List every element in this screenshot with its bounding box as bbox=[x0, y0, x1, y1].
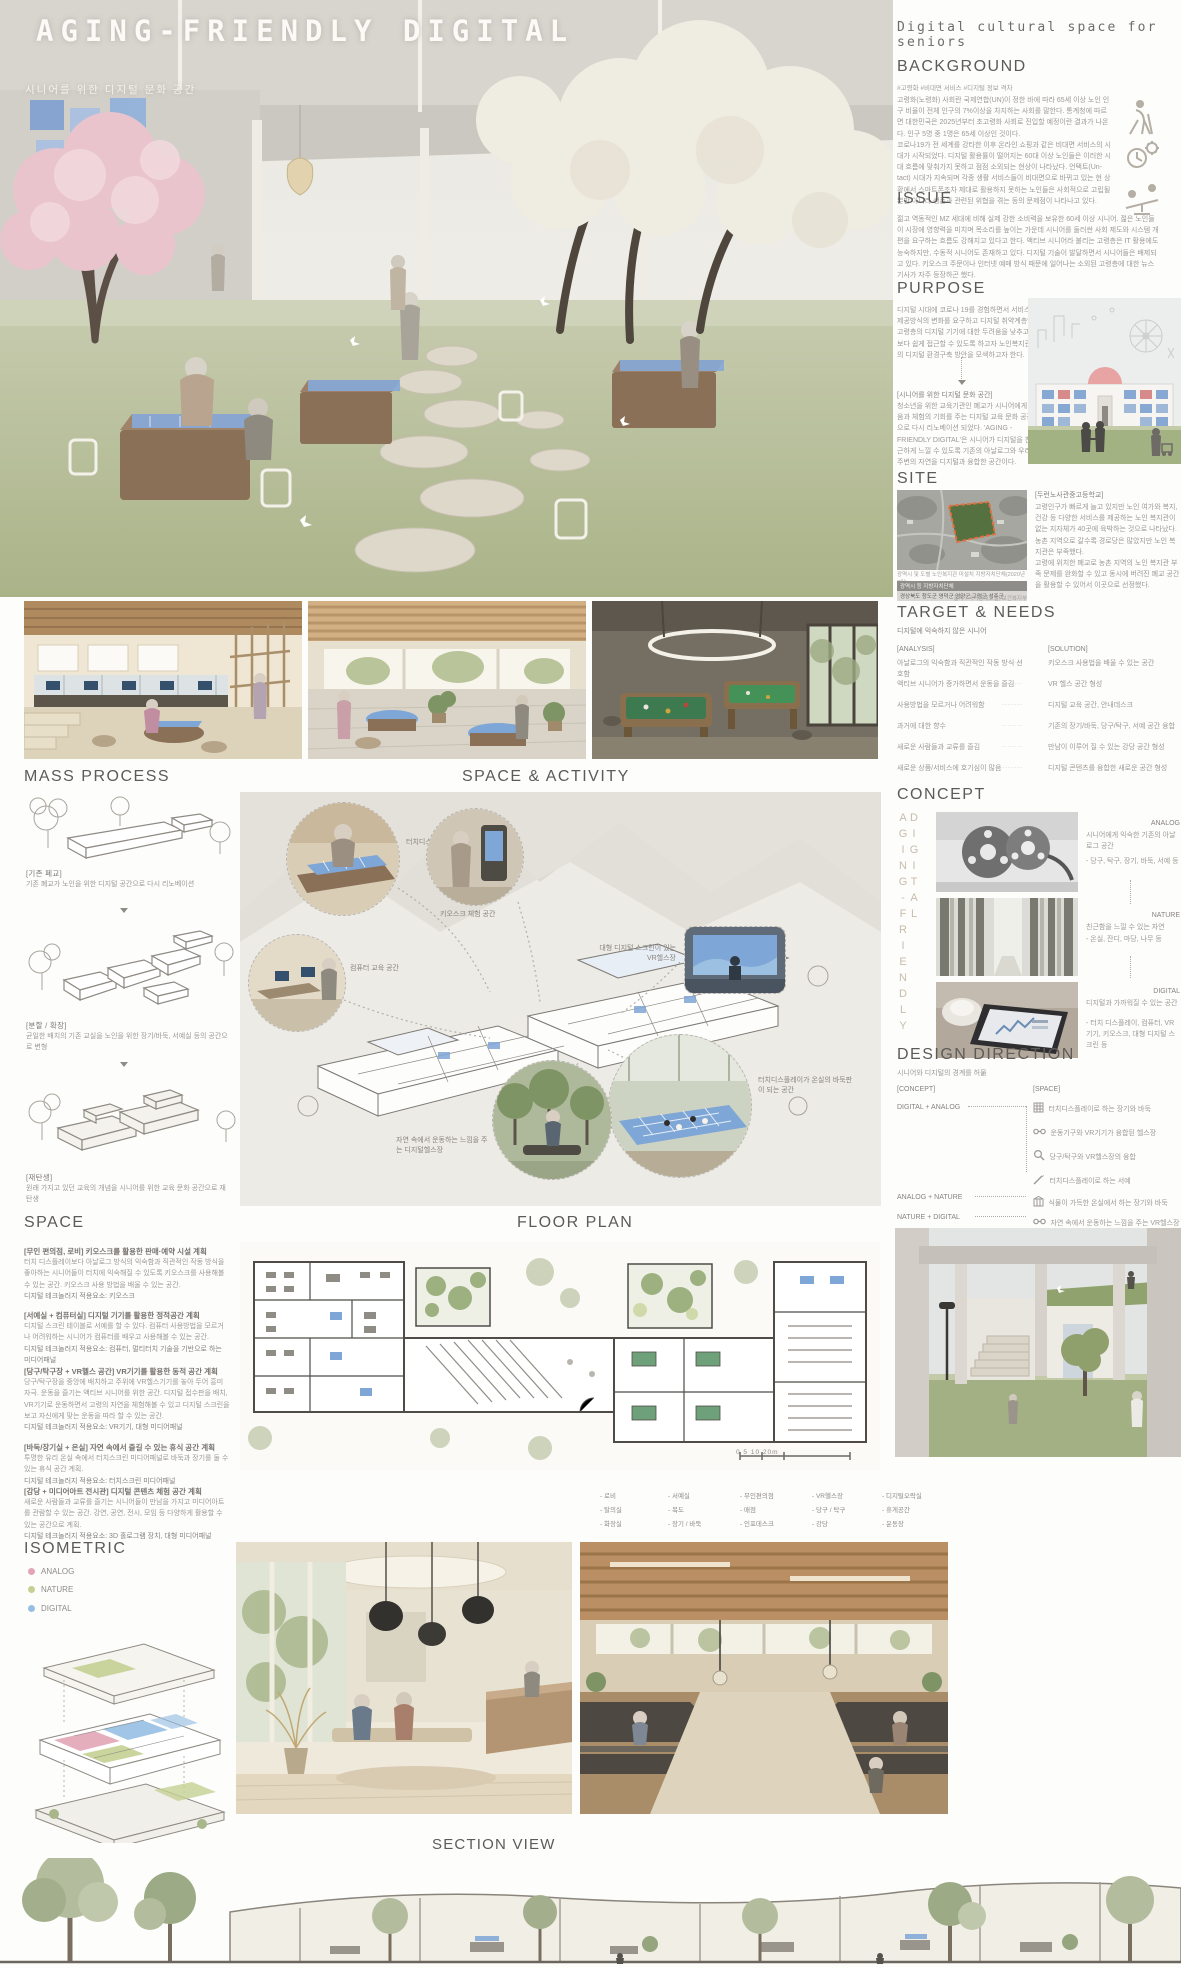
design-direction-heading: DESIGN DIRECTION bbox=[897, 1046, 1075, 1064]
mass-step-2-diagram bbox=[24, 922, 236, 1016]
space-block: [강당 + 미디어아트 전시관] 디지털 콘텐츠 체험 공간 계획 새로운 사람… bbox=[24, 1486, 230, 1542]
concept-item-desc: 시니어에게 익숙한 기존의 아날로그 공간 bbox=[1086, 830, 1180, 852]
mass-step-3-diagram bbox=[24, 1076, 236, 1168]
nature-color-dot bbox=[28, 1586, 35, 1593]
dotted-leader: ······· bbox=[1002, 765, 1023, 771]
dd-concept: DIGITAL + ANALOG bbox=[897, 1102, 960, 1113]
solution-label: [SOLUTION] bbox=[1048, 644, 1088, 655]
dotted-leader: ······· bbox=[1002, 702, 1023, 708]
plan-legend-col: - 디지털오락실 - 휴게공간 - 운동장 bbox=[882, 1490, 952, 1532]
concept-item-desc: 친근함을 느낄 수 있는 자연 bbox=[1086, 922, 1180, 933]
legend-item: - 탈의실 bbox=[600, 1504, 664, 1518]
target-row-solution: 만남이 이루어 질 수 있는 강당 공간 형성 bbox=[1048, 742, 1180, 753]
space-activity-heading: SPACE & ACTIVITY bbox=[462, 768, 630, 786]
plan-legend-col: - VR헬스장 - 당구 / 탁구 - 강당 bbox=[812, 1490, 878, 1532]
background-hashtags: #고령화 #비대면 서비스 #디지털 정보 격차 bbox=[897, 84, 1013, 94]
site-map-image bbox=[897, 490, 1027, 570]
section-view-heading: SECTION VIEW bbox=[432, 1836, 556, 1853]
mass-step-desc: 균일한 배치의 기존 교실을 노인을 위한 장기/바둑, 서예실 등의 공간으로… bbox=[26, 1031, 231, 1053]
vignette-calligraphy bbox=[286, 802, 400, 916]
concept-vertical-title: AGING-FRIENDLY DIGITAL bbox=[897, 812, 919, 1062]
dd-space-item: 터치디스플레이로 하는 서예 bbox=[1033, 1170, 1131, 1188]
legend-row: NATURE bbox=[28, 1584, 74, 1596]
target-needs-heading: TARGET & NEEDS bbox=[897, 604, 1056, 622]
analog-concept-image bbox=[936, 812, 1078, 892]
space-block-title: [강당 + 미디어아트 전시관] 디지털 콘텐츠 체험 공간 계획 bbox=[24, 1486, 230, 1497]
space-column-label: [SPACE] bbox=[1033, 1084, 1060, 1095]
vignette-kiosk bbox=[426, 808, 524, 906]
section-drawing bbox=[0, 1858, 1181, 1968]
legend-row: ANALOG bbox=[28, 1566, 74, 1578]
background-heading: BACKGROUND bbox=[897, 58, 1027, 76]
space-block-title: [서예실 + 컴퓨터실] 디지털 기기를 활용한 정적공간 계획 bbox=[24, 1310, 230, 1321]
mass-step-tag: [재탄생] bbox=[26, 1172, 52, 1183]
greenhouse-grid-icon bbox=[1033, 1196, 1044, 1207]
target-row-solution: 기존의 장기/바둑, 당구/탁구, 서예 공간 융합 bbox=[1048, 721, 1180, 732]
digital-color-dot bbox=[28, 1605, 35, 1612]
floor-plan-heading: FLOOR PLAN bbox=[517, 1214, 633, 1232]
vignette-baduk-greenhouse bbox=[608, 1034, 752, 1178]
site-table-header: 광역시 등 지방자치단체 bbox=[897, 581, 1027, 591]
space-block: [무인 편의점, 로비] 키오스크를 활용한 판매·예약 시설 계획 터치 디스… bbox=[24, 1246, 230, 1302]
down-arrow-icon bbox=[120, 1062, 128, 1067]
space-block-body: 당구/탁구장을 중앙에 배치하고 주위에 VR헬스기기를 놓아 두어 흥미 자극… bbox=[24, 1377, 230, 1422]
concept-item-name: NATURE bbox=[1086, 910, 1180, 921]
auditorium-render bbox=[580, 1542, 948, 1814]
concept-item-desc: 디지털과 가까워질 수 있는 공간 bbox=[1086, 998, 1180, 1009]
legend-item: - 운동장 bbox=[882, 1518, 952, 1532]
lobby-render bbox=[236, 1542, 572, 1814]
isometric-legend: ANALOG NATURE DIGITAL bbox=[28, 1566, 74, 1615]
mass-step-tag: [기존 폐교] bbox=[26, 868, 62, 879]
dotted-leader: ······· bbox=[1002, 723, 1023, 729]
space-block: [서예실 + 컴퓨터실] 디지털 기기를 활용한 정적공간 계획 디지털 스크린… bbox=[24, 1310, 230, 1366]
site-source: 출처 : 국가통계포털, 보건복지부 bbox=[897, 596, 1027, 604]
legend-item: - 복도 bbox=[668, 1504, 736, 1518]
dotted-leader: ······· bbox=[1002, 681, 1023, 687]
concept-item-detail: - 온실, 잔디, 마당, 나무 등 bbox=[1086, 934, 1180, 945]
isometric-heading: ISOMETRIC bbox=[24, 1540, 126, 1558]
baduk-grid-icon bbox=[1033, 1102, 1044, 1113]
dotted-connector bbox=[975, 1216, 1026, 1217]
legend-item: - 화장실 bbox=[600, 1518, 664, 1532]
digital-lounge-render bbox=[308, 601, 586, 759]
mass-step-1-diagram bbox=[24, 792, 236, 864]
space-block-body: 투명한 유리 온실 속에서 터치스크린 미디어패널로 바둑과 장기를 둘 수 있… bbox=[24, 1453, 230, 1475]
legend-item: - 매점 bbox=[740, 1504, 808, 1518]
concept-item-name: ANALOG bbox=[1086, 818, 1180, 829]
space-block-body: 터치 디스플레이보다 아날로그 방식의 익숙함과 직관적인 작동 방식을 좋아하… bbox=[24, 1257, 230, 1291]
concept-item-name: DIGITAL bbox=[1086, 986, 1180, 997]
legend-item: - 인포데스크 bbox=[740, 1518, 808, 1532]
target-row-solution: 키오스크 사용법을 배울 수 있는 공간 bbox=[1048, 658, 1180, 669]
concept-connector bbox=[1130, 956, 1131, 978]
issue-body: 젊고 역동적인 MZ 세대에 비해 실제 강한 소비력을 보유한 60세 이상 … bbox=[897, 214, 1159, 281]
analog-color-dot bbox=[28, 1568, 35, 1575]
senior-cane-icon bbox=[1130, 100, 1152, 134]
legend-item: - 강당 bbox=[812, 1518, 878, 1532]
target-row-solution: 디지털 교육 공간, 안내데스크 bbox=[1048, 700, 1180, 711]
vignette-label: 컴퓨터 교육 공간 bbox=[350, 964, 422, 974]
legend-item: - 서예실 bbox=[668, 1490, 736, 1504]
dd-space-item: 식물이 가득한 온실에서 하는 장기와 바둑 bbox=[1033, 1192, 1168, 1210]
concept-column-label: [CONCEPT] bbox=[897, 1084, 935, 1095]
space-block-title: [무인 편의점, 로비] 키오스크를 활용한 판매·예약 시설 계획 bbox=[24, 1246, 230, 1257]
mass-step-desc: 원래 가지고 있던 교육의 개념을 시니어를 위한 교육 문화 공간으로 재탄생 bbox=[26, 1183, 231, 1205]
poster-title: AGING-FRIENDLY DIGITAL bbox=[36, 14, 574, 48]
legend-item: - 무인편의점 bbox=[740, 1490, 808, 1504]
site-heading: SITE bbox=[897, 470, 939, 488]
isometric-exploded-diagram bbox=[24, 1628, 232, 1843]
space-block-body: 새로운 사람들과 교류를 즐기는 시니어들이 만남을 가지고 미디어아트를 관람… bbox=[24, 1497, 230, 1531]
background-icons bbox=[1124, 98, 1160, 218]
purpose-arrow-line bbox=[961, 357, 962, 379]
dd-concept: ANALOG + NATURE bbox=[897, 1192, 962, 1203]
issue-heading: ISSUE bbox=[897, 190, 953, 208]
space-block-title: [바둑/장기실 + 온실] 자연 속에서 즐길 수 있는 휴식 공간 계획 bbox=[24, 1442, 230, 1453]
mass-step-desc: 기존 폐교가 노인을 위한 디지털 공간으로 다시 리노베이션 bbox=[26, 879, 231, 890]
presentation-board: AGING-FRIENDLY DIGITAL 시니어를 위한 디지털 문화 공간… bbox=[0, 0, 1181, 1968]
plan-legend-col: - 로비 - 탈의실 - 화장실 bbox=[600, 1490, 664, 1532]
vignette-label: 대형 디지털 스크린이 있는 VR헬스장 bbox=[592, 944, 676, 964]
target-row-solution: VR 헬스 공간 형성 bbox=[1048, 679, 1180, 690]
dd-space-item: 운동기구와 VR기기가 융합된 헬스장 bbox=[1033, 1122, 1156, 1140]
legend-item: - VR헬스장 bbox=[812, 1490, 878, 1504]
brush-icon bbox=[1033, 1174, 1045, 1185]
dd-space-item: 터치디스플레이로 하는 장기와 바둑 bbox=[1033, 1098, 1151, 1116]
mass-step-tag: [분할 / 확장] bbox=[26, 1020, 67, 1031]
dotted-leader: ······· bbox=[1002, 744, 1023, 750]
concept-heading: CONCEPT bbox=[897, 786, 986, 804]
analysis-label: [ANALYSIS] bbox=[897, 644, 935, 655]
space-block-title: [당구/탁구장 + VR헬스 공간] VR기기를 활용한 동적 공간 계획 bbox=[24, 1366, 230, 1377]
vignette-label: 터치디스플레이가 온실의 바둑판이 되는 공간 bbox=[758, 1076, 854, 1096]
floor-plan-scale: 0 5 10 20m bbox=[736, 1448, 866, 1458]
poster-english-subtitle: Digital cultural space for seniors bbox=[897, 20, 1181, 50]
vignette-vr-health bbox=[492, 1060, 612, 1180]
legend-item: - 디지털오락실 bbox=[882, 1490, 952, 1504]
vignette-label: 자연 속에서 운동하는 느낌을 주는 디지털헬스장 bbox=[396, 1136, 488, 1156]
space-block-body: 디지털 스크린 테이블로 서예를 할 수 있다. 컴퓨터 사용방법을 모르거나 … bbox=[24, 1321, 230, 1343]
covid-clock-icon bbox=[1128, 141, 1159, 167]
target-needs-subtitle: 디지털에 익숙하지 않은 시니어 bbox=[897, 626, 987, 637]
dotted-connector bbox=[968, 1106, 1026, 1107]
purpose-callout-title: [시니어를 위한 디지털 문화 공간] bbox=[897, 390, 1039, 401]
vignette-label: 키오스크 체험 공간 bbox=[440, 910, 516, 920]
down-arrow-icon bbox=[120, 908, 128, 913]
space-block: [당구/탁구장 + VR헬스 공간] VR기기를 활용한 동적 공간 계획 당구… bbox=[24, 1366, 230, 1433]
vignette-vr-screen bbox=[684, 926, 786, 994]
space-block-tech: 디지털 테크놀러지 적용요소: VR기기, 대형 미디어패널 bbox=[24, 1422, 230, 1433]
mass-process-heading: MASS PROCESS bbox=[24, 768, 170, 786]
school-collage-image bbox=[1028, 298, 1181, 464]
dd-space-item: 당구/탁구와 VR헬스장의 융합 bbox=[1033, 1146, 1136, 1164]
poster-subtitle: 시니어를 위한 디지털 문화 공간 bbox=[25, 82, 196, 97]
legend-item: - 로비 bbox=[600, 1490, 664, 1504]
purpose-heading: PURPOSE bbox=[897, 280, 986, 298]
paddle-icon bbox=[1033, 1150, 1045, 1161]
courtyard-render bbox=[895, 1228, 1181, 1457]
concept-connector bbox=[1130, 880, 1131, 904]
site-body: 고령인구가 빠르게 늘고 있지만 노인 여가와 복지, 건강 등 다양한 서비스… bbox=[1035, 502, 1181, 592]
dotted-connector bbox=[975, 1196, 1026, 1197]
legend-item: - 장기 / 바둑 bbox=[668, 1518, 736, 1532]
floor-plan-drawing bbox=[240, 1242, 880, 1470]
dotted-leader: ······· bbox=[1002, 660, 1023, 666]
hero-render: AGING-FRIENDLY DIGITAL 시니어를 위한 디지털 문화 공간 bbox=[0, 0, 893, 597]
legend-item: - 당구 / 탁구 bbox=[812, 1504, 878, 1518]
purpose-body: 디지털 시대에 코로나 19를 경험하면서 서비스 제공방식의 변화를 요구하고… bbox=[897, 305, 1037, 361]
concept-item-detail: - 터치 디스플레이, 컴퓨터, VR기기, 키오스크, 대형 디지털 스크린 … bbox=[1086, 1018, 1180, 1052]
purpose-arrow-icon bbox=[958, 380, 966, 385]
dd-concept: NATURE + DIGITAL bbox=[897, 1212, 960, 1223]
legend-row: DIGITAL bbox=[28, 1603, 74, 1615]
space-activity-panel: 터치디스플레이 서예 공간 키오스크 체험 공간 컴퓨터 교육 공간 대형 bbox=[240, 792, 881, 1206]
concept-item-detail: - 당구, 탁구, 장기, 바둑, 서예 등 bbox=[1086, 856, 1180, 867]
computer-room-render bbox=[24, 601, 302, 759]
dotted-connector bbox=[1026, 1106, 1027, 1172]
billiards-room-render bbox=[592, 601, 878, 759]
plan-legend-col: - 무인편의점 - 매점 - 인포데스크 bbox=[740, 1490, 808, 1532]
vr-nature-icon bbox=[1033, 1217, 1046, 1226]
legend-item: - 휴게공간 bbox=[882, 1504, 952, 1518]
space-block: [바둑/장기실 + 온실] 자연 속에서 즐길 수 있는 휴식 공간 계획 투명… bbox=[24, 1442, 230, 1487]
target-row-solution: 디지털 콘텐츠를 융합한 새로운 공간 형성 bbox=[1048, 763, 1180, 774]
space-block-tech: 디지털 테크놀러지 적용요소: 키오스크 bbox=[24, 1291, 230, 1302]
design-direction-subtitle: 시니어와 디지털의 경계를 허묾 bbox=[897, 1068, 987, 1079]
space-heading: SPACE bbox=[24, 1214, 85, 1232]
digital-divide-scale-icon bbox=[1126, 184, 1158, 214]
nature-concept-image bbox=[936, 898, 1078, 976]
purpose-callout-body: 청소년을 위한 교육기관인 폐교가 시니어에게 배움과 체험의 기회를 주는 디… bbox=[897, 401, 1037, 468]
space-block-tech: 디지털 테크놀러지 적용요소: 컴퓨터, 멀티터치 기술을 기반으로 하는 미디… bbox=[24, 1344, 230, 1366]
plan-legend-col: - 서예실 - 복도 - 장기 / 바둑 bbox=[668, 1490, 736, 1532]
site-name-label: [두런노사관중고등학교] bbox=[1035, 490, 1181, 501]
vignette-computer-class bbox=[248, 934, 346, 1032]
vr-fusion-icon bbox=[1033, 1127, 1046, 1136]
